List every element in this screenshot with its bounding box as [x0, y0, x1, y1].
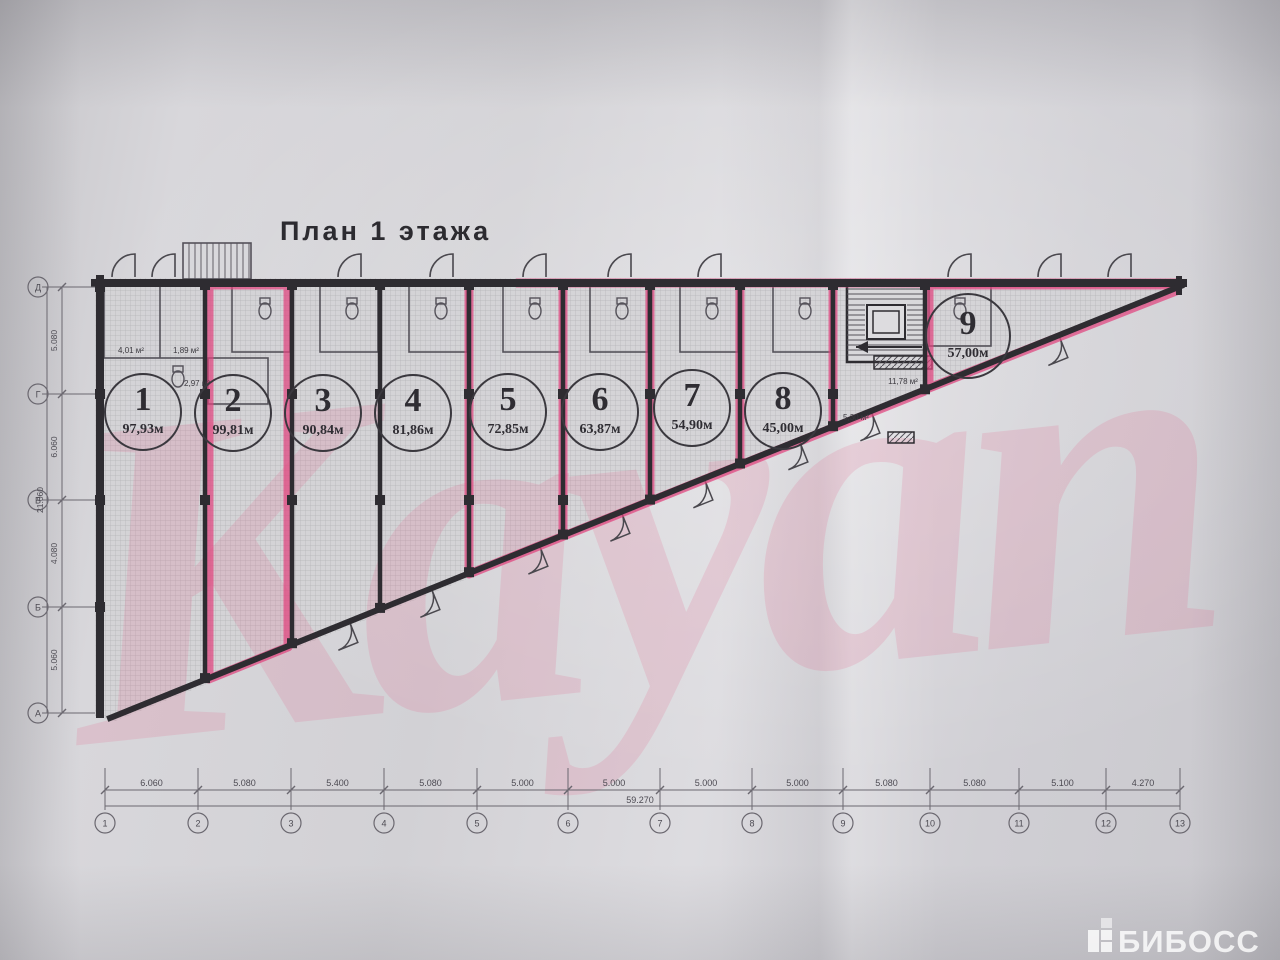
- column-diagonal: [920, 384, 930, 394]
- column-diagonal: [828, 421, 838, 431]
- unit-area: 97,93м: [122, 422, 164, 437]
- col-axis-number: 1: [102, 819, 107, 829]
- column-top: [558, 280, 568, 290]
- column-diagonal: [735, 458, 745, 468]
- dim-value-bottom: 5.000: [695, 778, 718, 788]
- unit-area: 57,00м: [947, 346, 989, 361]
- column-top: [464, 280, 474, 290]
- dim-total-bottom: 59.270: [626, 795, 654, 805]
- small-area-label: 11,78 м²: [888, 377, 918, 386]
- dim-value-left: 5.080: [49, 330, 59, 352]
- col-axis-number: 12: [1101, 819, 1111, 829]
- row-axis-letter: Б: [35, 603, 41, 613]
- door-arc-top: [112, 254, 135, 277]
- biboss-logo-text: БИБОСС: [1118, 924, 1260, 959]
- column-top: [645, 280, 655, 290]
- column-mid: [200, 495, 210, 505]
- dim-value-left: 6.060: [49, 436, 59, 458]
- col-axis-number: 13: [1175, 819, 1185, 829]
- dim-value-bottom: 5.080: [419, 778, 442, 788]
- dim-value-bottom: 5.000: [511, 778, 534, 788]
- row-axis-letter: А: [35, 709, 41, 719]
- column-top: [828, 280, 838, 290]
- dim-value-bottom: 5.080: [875, 778, 898, 788]
- column-diagonal: [645, 495, 655, 505]
- small-area-label: 2,97 м²: [184, 379, 210, 388]
- column-diagonal: [375, 603, 385, 613]
- unit-area: 45,00м: [762, 421, 804, 436]
- col-axis-number: 2: [195, 819, 200, 829]
- dim-value-bottom: 5.000: [603, 778, 626, 788]
- floor-plan-photo: Kayan ДГВБА5.0806.0604.0805.06021.060123…: [0, 0, 1280, 960]
- dim-total-left: 21.060: [35, 487, 45, 513]
- col-axis-number: 5: [474, 819, 479, 829]
- column-mid: [287, 495, 297, 505]
- column-left-wall: [95, 282, 105, 292]
- col-axis-number: 7: [657, 819, 662, 829]
- col-axis-number: 9: [840, 819, 845, 829]
- plan-title: План 1 этажа: [280, 216, 491, 246]
- column-left-wall: [95, 602, 105, 612]
- column-diagonal: [558, 529, 568, 539]
- door-arc-top: [152, 254, 175, 277]
- exterior-stair-outline: [183, 243, 251, 279]
- unit-area: 81,86м: [392, 423, 434, 438]
- col-axis-number: 10: [925, 819, 935, 829]
- unit-area: 63,87м: [579, 422, 621, 437]
- unit-number: 8: [775, 380, 792, 417]
- col-axis-number: 3: [288, 819, 293, 829]
- column-diagonal: [287, 638, 297, 648]
- column-mid: [558, 495, 568, 505]
- elevation-marker: [888, 432, 914, 443]
- door-arc-top: [338, 254, 361, 277]
- unit-number: 2: [225, 382, 242, 419]
- unit-area: 54,90м: [671, 418, 713, 433]
- dim-value-left: 5.060: [49, 649, 59, 671]
- stair-core: [847, 284, 925, 362]
- biboss-logo: БИБОСС: [1088, 918, 1260, 959]
- column-left-wall: [95, 389, 105, 399]
- column-mid: [828, 389, 838, 399]
- dim-value-bottom: 4.270: [1132, 778, 1155, 788]
- unit-area: 72,85м: [487, 422, 529, 437]
- column-mid: [375, 495, 385, 505]
- unit-number: 7: [684, 377, 701, 414]
- row-axis-letter: Г: [36, 390, 41, 400]
- col-axis-number: 8: [749, 819, 754, 829]
- small-area-label: 5,30 м²: [843, 413, 869, 422]
- dim-value-bottom: 5.080: [233, 778, 256, 788]
- exterior-stair: [183, 243, 251, 279]
- unit-area: 99,81м: [212, 423, 254, 438]
- unit-number: 9: [960, 305, 977, 342]
- door-arc-top: [430, 254, 453, 277]
- dim-value-bottom: 6.060: [140, 778, 163, 788]
- column-diagonal: [200, 673, 210, 683]
- unit-area: 90,84м: [302, 423, 344, 438]
- column-diagonal: [464, 567, 474, 577]
- dim-value-bottom: 5.000: [786, 778, 809, 788]
- row-axis-letter: Д: [35, 283, 41, 293]
- col-axis-number: 11: [1014, 819, 1023, 829]
- column-mid: [645, 389, 655, 399]
- small-area-label: 4,01 м²: [118, 346, 144, 355]
- small-area-label: 1,89 м²: [173, 346, 199, 355]
- column-top: [920, 280, 930, 290]
- unit-number: 3: [315, 382, 332, 419]
- unit-number: 1: [135, 381, 152, 418]
- col-axis-number: 6: [565, 819, 570, 829]
- column-top: [200, 280, 210, 290]
- column-left-wall: [95, 495, 105, 505]
- unit-number: 6: [592, 381, 609, 418]
- column-mid: [464, 495, 474, 505]
- column-top: [735, 280, 745, 290]
- unit-number: 4: [405, 382, 422, 419]
- column-top: [375, 280, 385, 290]
- dim-value-left: 4.080: [49, 543, 59, 565]
- dim-value-bottom: 5.100: [1051, 778, 1074, 788]
- column-mid: [735, 389, 745, 399]
- door-arc-top: [523, 254, 546, 277]
- biboss-logo-icon: [1088, 918, 1112, 952]
- column-top: [287, 280, 297, 290]
- col-axis-number: 4: [381, 819, 386, 829]
- dim-value-bottom: 5.080: [963, 778, 986, 788]
- dim-value-bottom: 5.400: [326, 778, 349, 788]
- unit-number: 5: [500, 381, 517, 418]
